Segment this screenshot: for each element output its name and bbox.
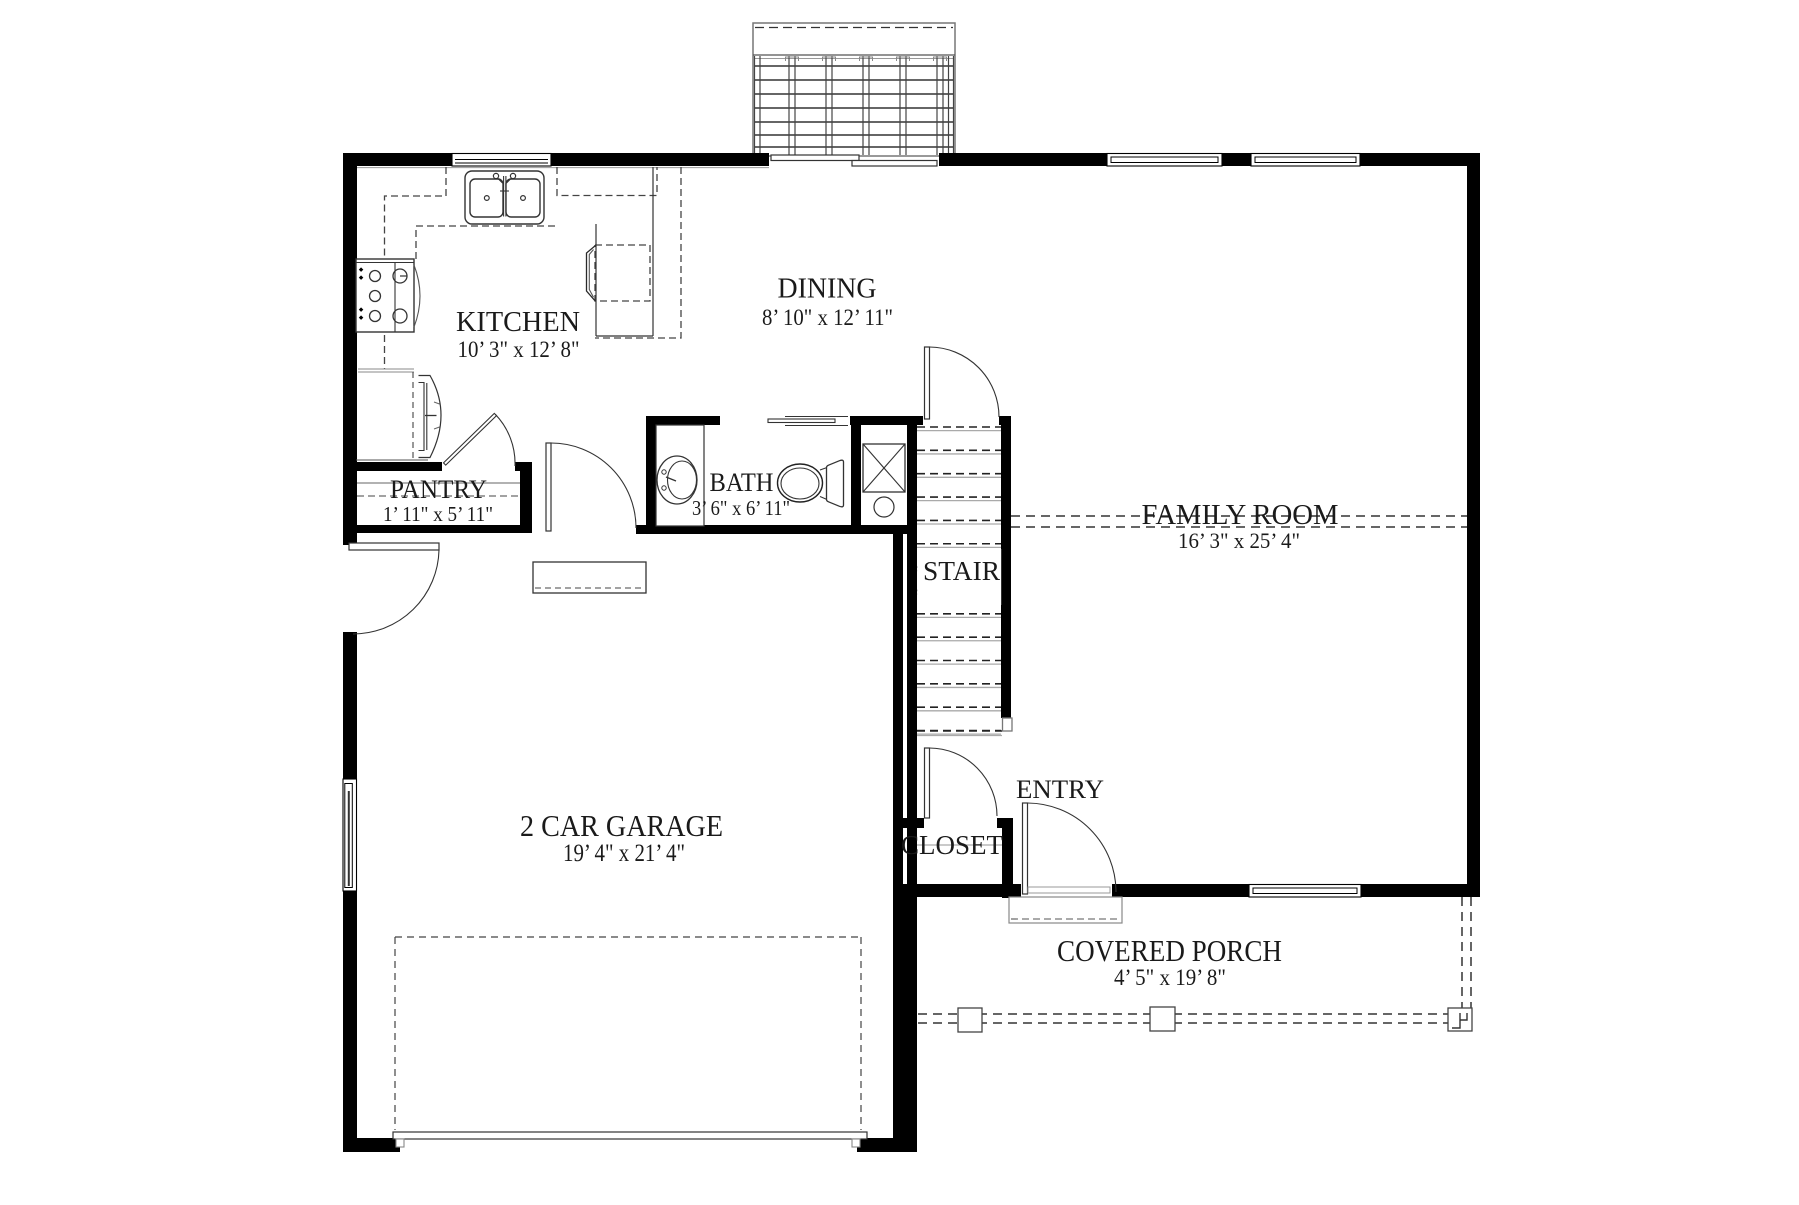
svg-text:10’ 3" x 12’ 8": 10’ 3" x 12’ 8" [458, 337, 580, 362]
svg-text:STAIR: STAIR [923, 556, 1000, 586]
svg-text:PANTRY: PANTRY [390, 475, 487, 504]
svg-text:CLOSET: CLOSET [901, 830, 1003, 860]
svg-text:BATH: BATH [710, 468, 774, 497]
svg-text:1’ 11" x 5’ 11": 1’ 11" x 5’ 11" [383, 502, 493, 526]
svg-text:3’ 6" x 6’ 11": 3’ 6" x 6’ 11" [692, 496, 790, 520]
svg-text:4’ 5" x 19’ 8": 4’ 5" x 19’ 8" [1114, 965, 1226, 990]
svg-text:DINING: DINING [778, 274, 877, 305]
svg-text:FAMILY ROOM: FAMILY ROOM [1142, 499, 1339, 531]
svg-text:COVERED PORCH: COVERED PORCH [1057, 933, 1282, 968]
svg-text:16’ 3" x 25’ 4": 16’ 3" x 25’ 4" [1178, 528, 1300, 553]
svg-text:ENTRY: ENTRY [1016, 775, 1104, 804]
svg-text:8’ 10" x 12’ 11": 8’ 10" x 12’ 11" [762, 305, 893, 330]
svg-text:19’ 4" x 21’ 4": 19’ 4" x 21’ 4" [563, 840, 685, 867]
svg-text:KITCHEN: KITCHEN [456, 306, 580, 338]
svg-text:2 CAR GARAGE: 2 CAR GARAGE [520, 808, 723, 843]
